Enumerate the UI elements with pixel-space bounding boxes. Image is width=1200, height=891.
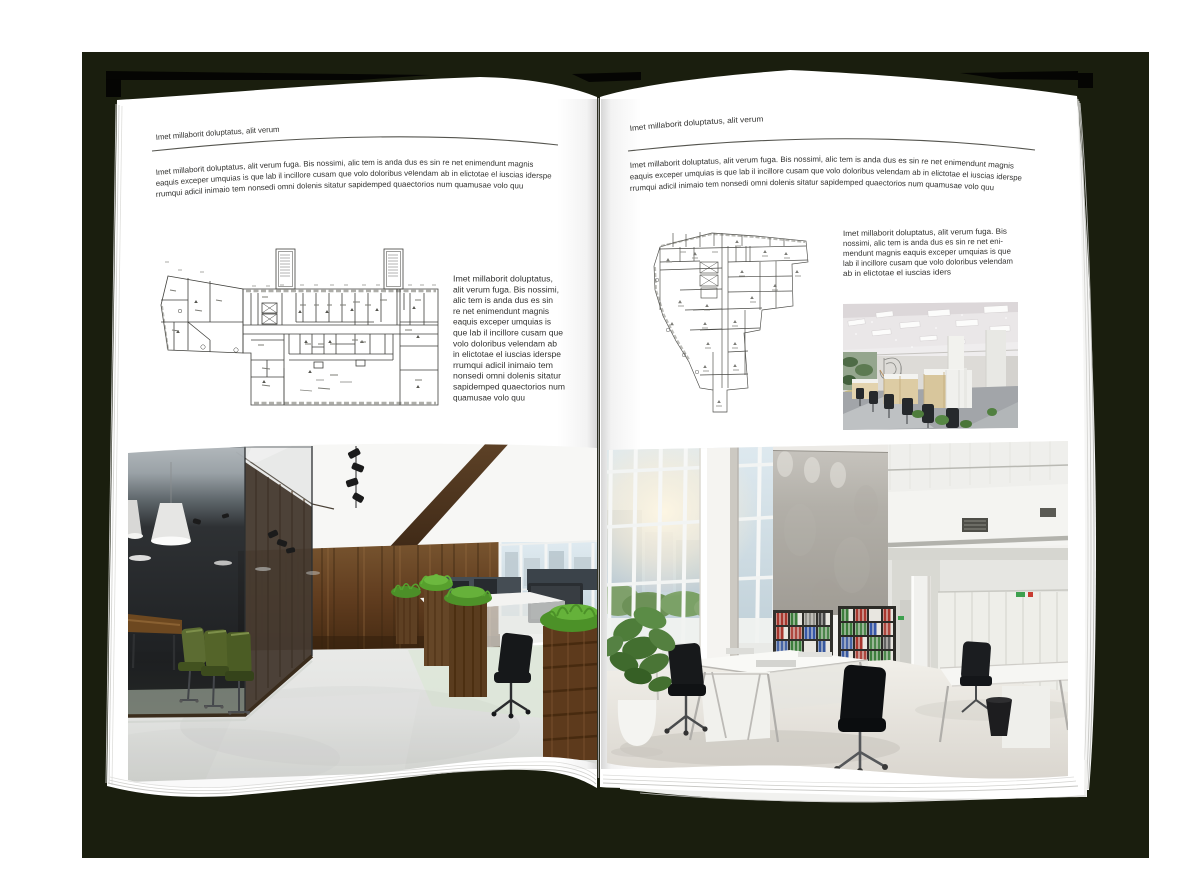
svg-text:alit verum fuga. Bis nossimi,: alit verum fuga. Bis nossimi, <box>453 285 559 294</box>
svg-text:rrumqui adicil inimaio tem: rrumqui adicil inimaio tem <box>453 361 553 370</box>
svg-text:nonsedi omni dolenis sitatur: nonsedi omni dolenis sitatur <box>453 372 561 381</box>
svg-text:volo doloribus velendam ab: volo doloribus velendam ab <box>453 339 558 348</box>
svg-text:in elictotae el iuscias idersp: in elictotae el iuscias iderspe <box>453 350 561 359</box>
svg-text:sapidemped quaectorios num: sapidemped quaectorios num <box>453 383 565 392</box>
svg-text:re net enimendunt magnis: re net enimendunt magnis <box>453 307 549 316</box>
svg-text:alic tem is anda dus es sin: alic tem is anda dus es sin <box>453 296 553 305</box>
svg-text:quamusae volo quu: quamusae volo quu <box>453 393 525 402</box>
svg-text:ab in elictotae el iuscias ide: ab in elictotae el iuscias iders <box>843 267 951 278</box>
svg-text:Imet millaborit doluptatus,: Imet millaborit doluptatus, <box>453 275 553 284</box>
svg-text:eaquis exceper umquias is: eaquis exceper umquias is <box>453 318 551 327</box>
svg-text:que lab il incillore cusam que: que lab il incillore cusam que <box>453 329 563 338</box>
